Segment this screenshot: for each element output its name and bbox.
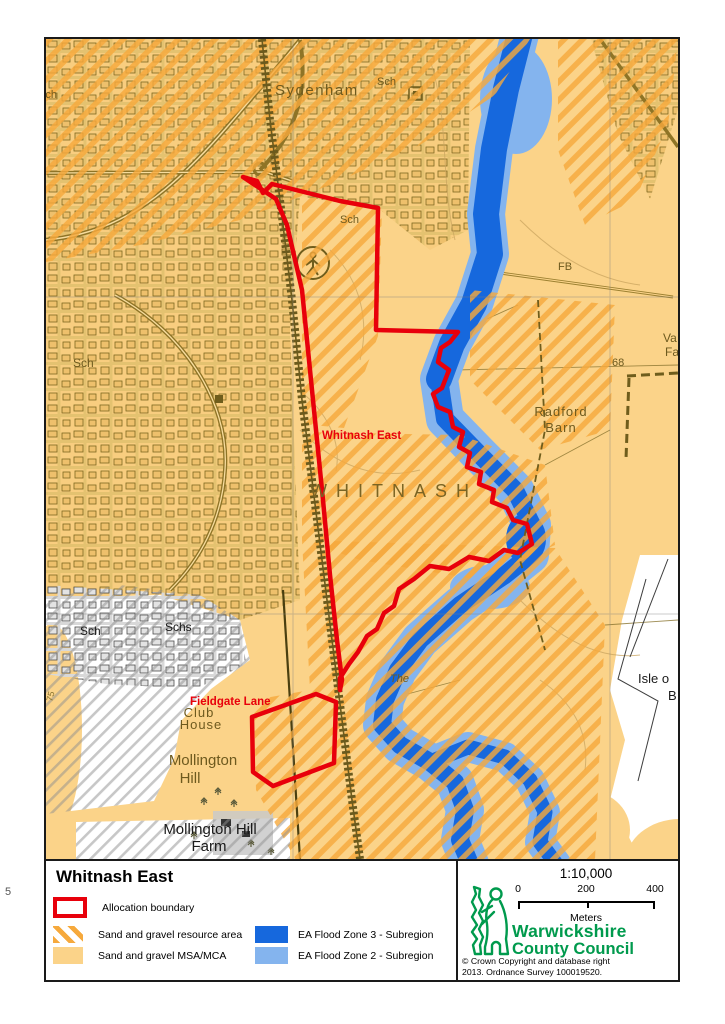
- legend-item-msa: Sand and gravel MSA/MCA: [53, 947, 226, 964]
- legend-item-label: Sand and gravel MSA/MCA: [98, 950, 226, 962]
- legend-item-resource-area: Sand and gravel resource area: [53, 926, 242, 943]
- legend-scale-panel: 1:10,000 0 200 400 Meters Warwickshire C…: [458, 861, 678, 980]
- school-label: Sch: [73, 357, 94, 369]
- copyright-line: © Crown Copyright and database right: [462, 957, 610, 966]
- school-label: Sch: [340, 215, 359, 226]
- place-label-clipped: Fa: [665, 346, 678, 358]
- place-label-mollington-hill-farm: Farm: [192, 839, 227, 854]
- legend-item-label: Sand and gravel resource area: [98, 929, 242, 941]
- legend-key-panel: Whitnash East Allocation boundary Sand a…: [46, 861, 458, 980]
- place-label-isle: Isle o: [638, 672, 669, 685]
- scale-bar-midtick: [587, 903, 589, 908]
- scale-ratio: 1:10,000: [560, 866, 613, 881]
- map-frame: Sydenham Sch Sch Sch Sch Sch Schs WHITNA…: [44, 37, 680, 982]
- spot-height-label: 68: [612, 358, 624, 369]
- copyright-line: 2013. Ordnance Survey 100019520.: [462, 968, 602, 977]
- margin-note: 5: [5, 886, 11, 898]
- scale-bar: [518, 901, 655, 909]
- map-graphics: [46, 39, 678, 859]
- legend-item-flood-zone2: EA Flood Zone 2 - Subregion: [255, 947, 433, 964]
- place-label-mollington-hill: Hill: [180, 771, 201, 786]
- scale-tick: 0: [515, 883, 521, 895]
- council-name: Warwickshire: [512, 923, 627, 941]
- place-label-radford-barn: Radford: [534, 405, 587, 418]
- legend-item-label: Allocation boundary: [102, 902, 194, 914]
- place-label-radford-barn: Barn: [545, 421, 576, 434]
- legend-item-flood-zone3: EA Flood Zone 3 - Subregion: [255, 926, 433, 943]
- site-annotation: Whitnash East: [322, 431, 401, 443]
- resource-area-swatch: [53, 926, 83, 943]
- legend-item-label: EA Flood Zone 3 - Subregion: [298, 929, 433, 941]
- map-page: 5: [0, 0, 725, 1024]
- place-label-sydenham: Sydenham: [275, 83, 359, 98]
- legend: Whitnash East Allocation boundary Sand a…: [46, 859, 678, 980]
- place-label-club-house: House: [180, 718, 223, 731]
- parcel-annotation: Fieldgate Lane: [190, 697, 271, 709]
- school-label: Sch: [80, 625, 101, 637]
- legend-item-label: EA Flood Zone 2 - Subregion: [298, 950, 433, 962]
- scale-tick: 200: [577, 883, 595, 895]
- place-label-whitnash: WHITNASH: [310, 482, 478, 500]
- place-label-clipped: Va: [663, 332, 677, 344]
- footbridge-label: FB: [558, 262, 572, 273]
- flood-zone2-swatch: [255, 947, 288, 964]
- council-bear-logo-icon: [463, 883, 513, 957]
- school-label: Sch: [377, 77, 396, 88]
- scale-tick: 400: [646, 883, 664, 895]
- map-canvas: Sydenham Sch Sch Sch Sch Sch Schs WHITNA…: [46, 39, 678, 859]
- flood-zone3-swatch: [255, 926, 288, 943]
- school-label: Schs: [165, 621, 192, 633]
- legend-title: Whitnash East: [56, 867, 173, 887]
- legend-item-allocation-boundary: Allocation boundary: [53, 897, 194, 918]
- place-label-the: The: [390, 674, 409, 685]
- place-label-mollington-hill-farm: Mollington Hill: [163, 822, 256, 837]
- allocation-boundary-swatch: [53, 897, 87, 918]
- place-label-mollington-hill: Mollington: [169, 753, 237, 768]
- place-label-isle: B: [668, 689, 677, 702]
- building-symbol: [215, 395, 223, 403]
- school-label: Sch: [46, 90, 57, 101]
- msa-swatch: [53, 947, 83, 964]
